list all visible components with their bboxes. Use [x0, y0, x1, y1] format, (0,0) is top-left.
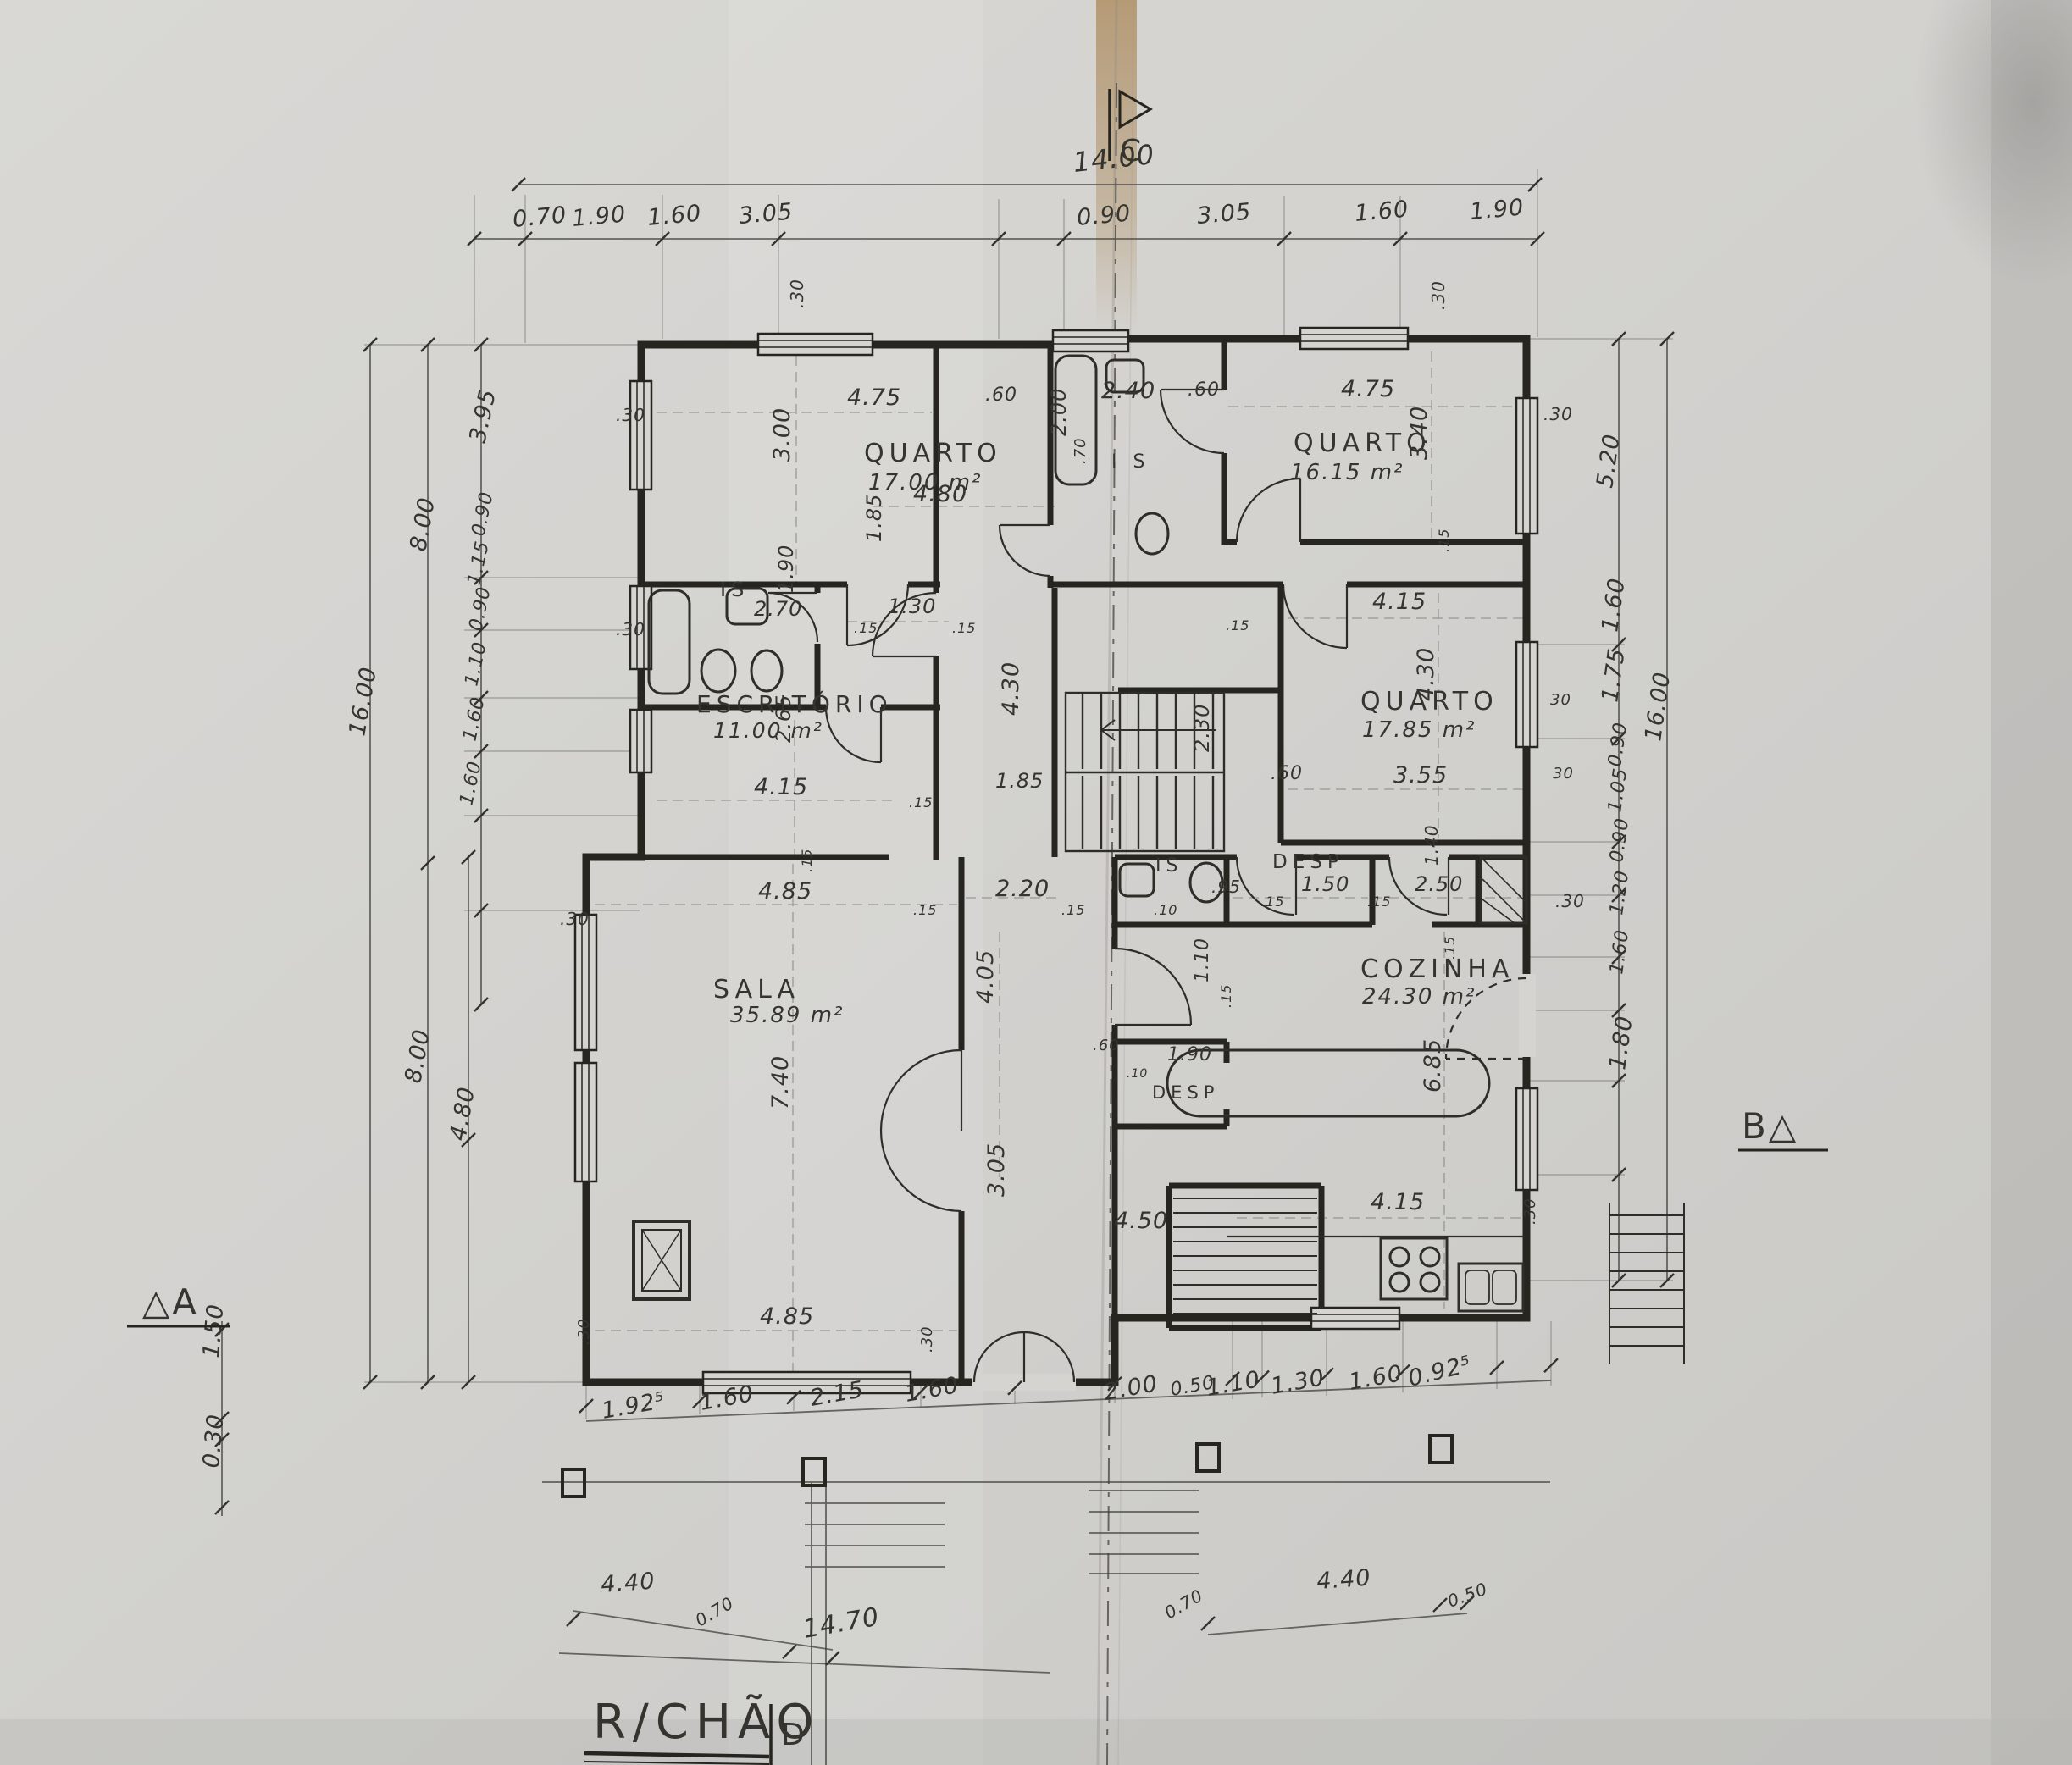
room-area-label: 17.00 m² [868, 470, 982, 495]
dim-label: .30 [1555, 891, 1585, 911]
dim-label: .15 [1260, 894, 1284, 910]
dim-label: 2.40 [1101, 378, 1155, 404]
dim-label: 4.15 [1371, 1189, 1425, 1215]
dim-label: 4.75 [1341, 376, 1395, 402]
dim-label: .30 [575, 1318, 593, 1345]
dim-label: 7.40 [767, 1055, 794, 1109]
floor-plan-svg: 14.000.701.901.603.050.903.051.601.901.9… [0, 0, 2072, 1765]
room-label: IS [720, 578, 749, 601]
room-label: SALA [713, 975, 800, 1004]
room-label: ESCRITÓRIO [696, 689, 893, 718]
dim-label: .30 [1543, 404, 1573, 424]
window [630, 710, 651, 772]
dim-label: .30 [616, 619, 645, 639]
dim-label: 1.85 [862, 494, 886, 542]
room-area-label: 11.00 m² [713, 718, 823, 743]
dim-label: 4.30 [998, 661, 1024, 716]
dim-label: .15 [1367, 894, 1391, 910]
dim-label: 2.30 [1190, 704, 1214, 752]
dim-label: 1.90 [571, 202, 628, 232]
dim-label: 1.30 [888, 595, 936, 618]
dim-label: .30 [1521, 1198, 1539, 1225]
window [575, 915, 596, 1050]
dim-label: .15 [913, 902, 937, 918]
dim-label: 30 [1550, 691, 1571, 709]
window [758, 334, 873, 355]
room-label: DESP [1272, 851, 1344, 873]
window [1516, 642, 1537, 747]
room-label: IS [1155, 855, 1183, 877]
dim-label: .70 [1072, 437, 1089, 464]
dim-label: .30 [1428, 280, 1449, 310]
window [1053, 330, 1128, 351]
dim-label: 4.15 [1372, 589, 1427, 615]
window [1311, 1308, 1399, 1329]
dim-label: 1.10 [1192, 938, 1213, 982]
room-area-label: 17.85 m² [1362, 717, 1476, 743]
dim-label: 1.90 [1469, 195, 1526, 225]
dim-label: 1.60 [1354, 196, 1410, 227]
room-label: COZINHA [1360, 954, 1514, 984]
dim-label: 2.00 [1047, 388, 1071, 436]
room-area-label: 16.15 m² [1290, 460, 1404, 485]
dim-label: .15 [1218, 984, 1234, 1008]
dim-label: 3.55 [1393, 762, 1448, 788]
section-marker-c-label: C [1120, 134, 1144, 169]
dim-label: .30 [560, 909, 590, 929]
dim-label: 4.85 [760, 1303, 814, 1330]
dim-label: 0.30 [198, 1413, 229, 1469]
dim-label: 3.05 [738, 199, 795, 230]
dim-label: .60 [1093, 1037, 1120, 1054]
dim-label: .60 [1271, 763, 1303, 784]
dim-label: 3.05 [983, 1143, 1010, 1197]
dim-label: 1.50 [198, 1303, 229, 1359]
dim-label: .15 [1226, 617, 1249, 634]
dim-label: 4.40 [1316, 1565, 1371, 1595]
dim-label: 4.40 [600, 1569, 656, 1598]
window [1300, 328, 1408, 349]
dim-label: 1.40 [1421, 824, 1442, 866]
dim-label: .15 [1436, 528, 1452, 552]
dim-label: .10 [1127, 1067, 1148, 1081]
dim-label: .30 [616, 405, 645, 425]
room-label: QUARTO [1360, 687, 1499, 717]
room-area-label: 24.30 m² [1362, 984, 1476, 1010]
dim-label: 3.05 [1196, 199, 1253, 230]
dim-label: 1.60 [646, 201, 703, 231]
dim-label: .15 [854, 620, 878, 636]
dim-label: .15 [909, 794, 933, 811]
dim-label: 4.75 [847, 385, 901, 411]
dim-label: 4.85 [758, 878, 812, 905]
room-label: I S [1111, 451, 1150, 473]
blueprint-photo: 14.000.701.901.603.050.903.051.601.901.9… [0, 0, 2072, 1765]
dim-label: .95 [1211, 877, 1241, 897]
page-title: R/CHÃO [593, 1695, 820, 1750]
dim-label: 4.05 [972, 949, 999, 1004]
dim-label: 1.85 [995, 769, 1044, 793]
dim-label: .60 [985, 385, 1017, 406]
dim-label: 1.50 [1301, 872, 1349, 896]
dim-label: 0.70 [512, 202, 568, 233]
dim-label: .10 [1154, 902, 1177, 918]
dim-label: 3.00 [769, 407, 795, 462]
window [1516, 1088, 1537, 1190]
dim-label: 1.90 [774, 545, 798, 593]
section-marker-a-label: △A [142, 1281, 199, 1323]
dim-label: 2.50 [1415, 872, 1463, 896]
dim-label: 2.20 [995, 876, 1050, 902]
dim-label: 0.90 [1076, 201, 1133, 231]
dim-label: 2.70 [754, 597, 802, 621]
dim-label: 6.85 [1420, 1038, 1446, 1093]
dim-label: .60 [1188, 379, 1220, 401]
window [1516, 398, 1537, 534]
room-label: DESP [1152, 1082, 1219, 1103]
window [575, 1063, 596, 1181]
dim-label: .15 [799, 849, 815, 872]
dim-label: .30 [918, 1325, 936, 1353]
window [630, 381, 651, 490]
dim-label: 1.90 [1167, 1044, 1212, 1065]
section-marker-b-label: B△ [1742, 1105, 1798, 1147]
room-area-label: 35.89 m² [730, 1003, 844, 1028]
dim-label: 4.50 [1114, 1208, 1168, 1234]
room-label: QUARTO [1294, 429, 1432, 458]
dim-label: .15 [1061, 902, 1085, 918]
dim-label: 4.15 [754, 774, 808, 800]
dim-label: .30 [787, 279, 807, 308]
room-label: QUARTO [864, 439, 1002, 468]
dim-label: 30 [1553, 765, 1574, 783]
dim-label: .15 [952, 620, 976, 636]
